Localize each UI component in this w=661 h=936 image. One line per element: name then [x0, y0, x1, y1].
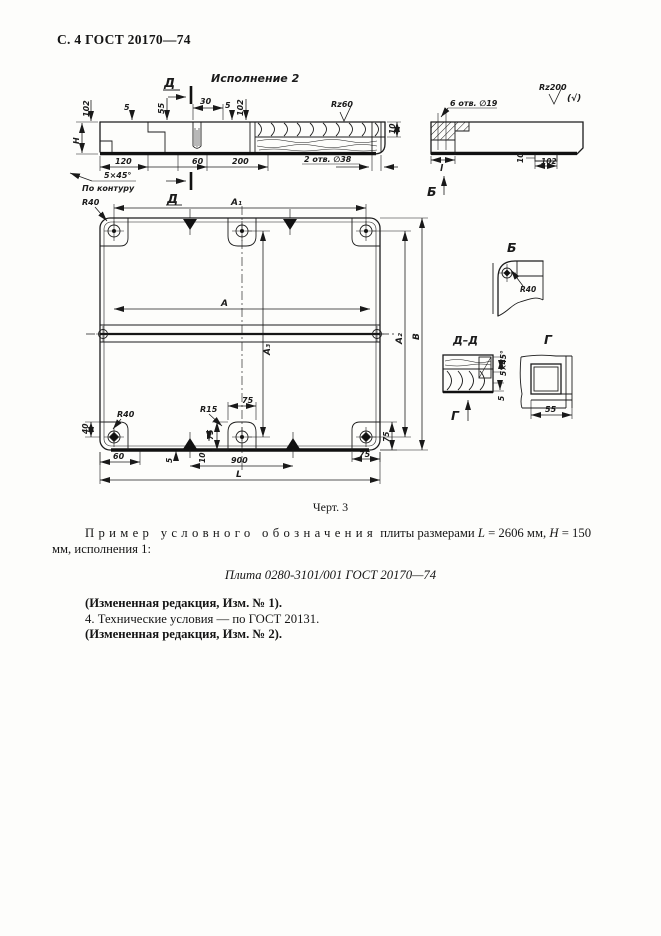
- dim-102-left: 102: [82, 100, 91, 117]
- dim-A3: A₃: [263, 344, 273, 356]
- dim-A1: A₁: [230, 198, 242, 208]
- dim-5-left: 5: [124, 103, 130, 112]
- dim-5-right: 5: [225, 101, 231, 110]
- note-amend-2: (Измененная редакция, Изм. № 2).: [52, 627, 609, 643]
- dim-10-bottom: 10: [198, 453, 207, 463]
- dim-55-g: 55: [545, 405, 557, 414]
- view-g: Г 55: [520, 332, 572, 419]
- view-g-title: Г: [544, 332, 553, 347]
- dim-200: 200: [232, 157, 249, 166]
- label-po-konturu: По контуру: [82, 184, 135, 193]
- dim-A2: A₂: [395, 333, 405, 345]
- front-view: Д Д Исполнение 2 Rz60 H 102 5 55 30 5 10…: [70, 72, 401, 206]
- dim-10-wood: 10: [388, 124, 397, 134]
- document-page: { "page": { "header": "С. 4 ГОСТ 20170—7…: [0, 0, 661, 936]
- figure-caption: Черт. 3: [52, 500, 609, 515]
- example-lead: Пример условного обозначения: [85, 526, 377, 540]
- example-paragraph: Пример условного обозначения плиты разме…: [52, 526, 609, 558]
- dim-5-bottom: 5: [165, 458, 174, 463]
- dim-L: L: [236, 470, 242, 480]
- example-eq1: = 2606 мм,: [488, 526, 546, 540]
- variant-title: Исполнение 2: [211, 72, 300, 85]
- dim-chamfer-contour: 5×45°: [104, 171, 131, 180]
- view-letter-g: Г: [451, 408, 460, 423]
- dim-40: 40: [81, 424, 90, 434]
- surface-mark-rz200: Rz200: [539, 83, 567, 92]
- surface-mark-alt: (√): [567, 93, 581, 104]
- dim-R40-top-left: R40: [82, 198, 100, 207]
- technical-drawing: Д Д Исполнение 2 Rz60 H 102 5 55 30 5 10…: [0, 0, 661, 498]
- view-letter-b: Б: [427, 184, 437, 199]
- dim-10-side: 10: [516, 153, 525, 163]
- dim-120: 120: [115, 157, 132, 166]
- example-var-L: L: [478, 526, 485, 540]
- dim-75-br-v: 75: [382, 432, 391, 442]
- dim-5-dd: 5: [497, 396, 506, 401]
- dim-l-small: l: [440, 164, 444, 174]
- dim-H: H: [72, 137, 81, 144]
- note-amend-1: (Измененная редакция, Изм. № 1).: [52, 596, 609, 612]
- text-block: Черт. 3 Пример условного обозначения пли…: [52, 500, 609, 643]
- dim-A: A: [220, 299, 228, 309]
- dim-102-side: 102: [541, 157, 557, 166]
- dim-R40-detail: R40: [520, 285, 536, 294]
- dim-55: 55: [157, 102, 166, 114]
- note-item-4: 4. Технические условия — по ГОСТ 20131.: [52, 612, 609, 628]
- dim-60-top: 60: [192, 157, 204, 166]
- dim-2-holes-38: 2 отв. ∅38: [304, 155, 352, 164]
- dim-R40-bottom-left: R40: [117, 410, 135, 419]
- designation: Плита 0280-3101/001 ГОСТ 20170—74: [52, 568, 609, 584]
- section-letter-d-top: Д: [163, 75, 175, 90]
- plan-view: A₁ A A₃ A₂ B 40 R40 R40 60 R15 75 75 5 1…: [81, 198, 428, 484]
- dim-R15: R15: [200, 405, 218, 414]
- section-dd-title: Д–Д: [452, 334, 478, 347]
- dim-75-center-h: 75: [242, 396, 254, 405]
- dim-102-mid: 102: [236, 99, 245, 116]
- dim-B: B: [412, 333, 422, 340]
- dim-chamfer-dd: 5×45°: [499, 350, 508, 376]
- section-letter-d-bottom: Д: [166, 191, 178, 206]
- dim-6-holes-19: 6 отв. ∅19: [450, 99, 498, 108]
- end-view: 6 отв. ∅19 10 102 l Б Rz200 (√): [427, 83, 583, 199]
- detail-b-title: Б: [507, 240, 517, 255]
- dim-75-center-v: 75: [206, 430, 215, 440]
- example-var-H: Н: [549, 526, 558, 540]
- dim-30: 30: [200, 97, 212, 106]
- section-dd: Д–Д 5×45° 5 Г: [443, 334, 508, 423]
- dim-900: 900: [231, 456, 248, 465]
- dim-60-bottom-left: 60: [113, 452, 125, 461]
- dim-75-br-h: 75: [359, 450, 371, 459]
- detail-b: Б R40: [493, 240, 543, 316]
- example-tail: исполнения 1:: [74, 542, 151, 556]
- example-mid: плиты размерами: [380, 526, 474, 540]
